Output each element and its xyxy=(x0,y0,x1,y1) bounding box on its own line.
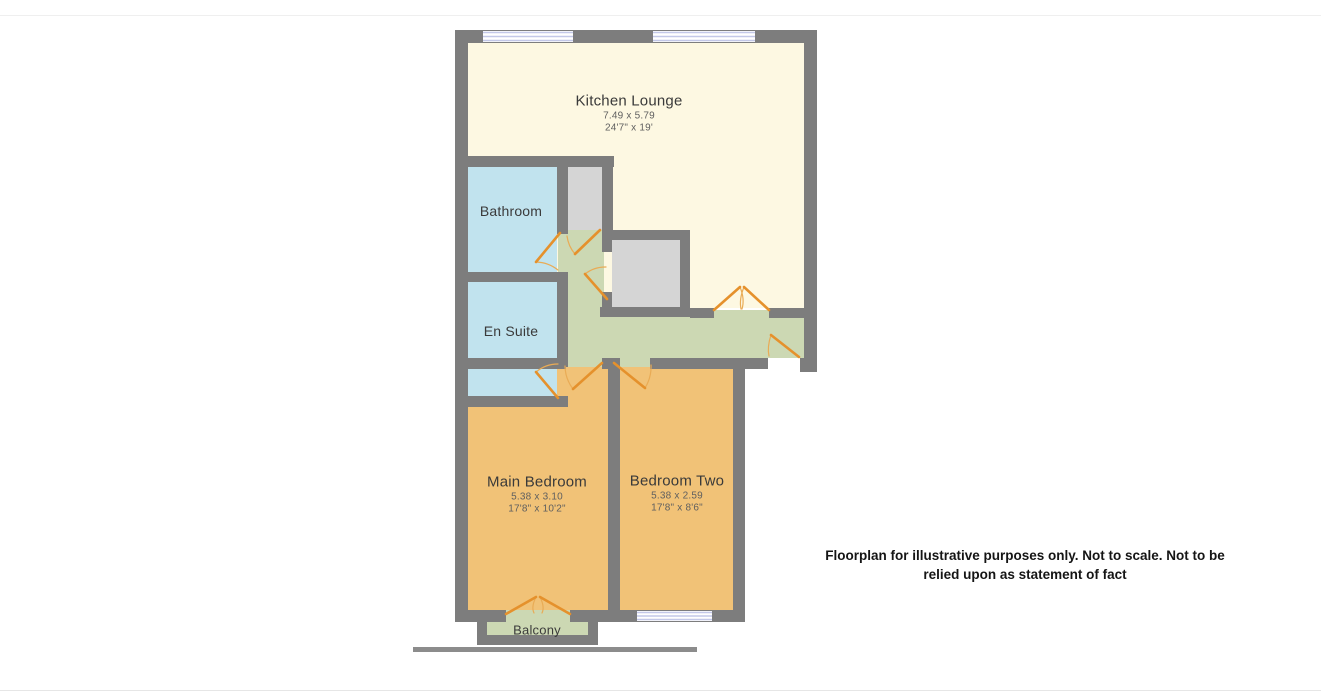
main-bedroom-dims-metric: 5.38 x 3.10 xyxy=(511,492,563,503)
en-suite-label: En Suite xyxy=(484,323,539,339)
wall-bedrooms-divider xyxy=(608,358,620,622)
wall-bathroom-top xyxy=(455,156,614,167)
kitchen-lounge-dims-metric: 7.49 x 5.79 xyxy=(603,111,655,122)
wall-ensuite-right xyxy=(557,282,568,367)
bedroom-two-dims-metric: 5.38 x 2.59 xyxy=(651,491,703,502)
kitchen-lounge-label: Kitchen Lounge xyxy=(575,93,682,110)
wall-right xyxy=(804,30,817,372)
bedroom-two-window xyxy=(637,611,712,621)
wall-bedrooms-top-3 xyxy=(650,358,745,369)
wall-storage-right xyxy=(680,230,690,317)
wall-closet-right xyxy=(602,156,613,240)
wall-bedroom-two-right xyxy=(733,358,745,622)
wall-left xyxy=(455,30,468,622)
wall-bathroom-ensuite-divider xyxy=(455,272,568,282)
bedroom-two-label: Bedroom Two xyxy=(630,473,724,490)
kitchen-lounge-dims-imperial: 24'7" x 19' xyxy=(605,123,653,134)
wall-bathroom-right xyxy=(557,156,568,234)
bathroom-room xyxy=(466,166,557,272)
wall-storage-top xyxy=(602,230,690,240)
wall-kitchen-bottom-right xyxy=(769,308,804,318)
wall-entrance-corner xyxy=(800,358,817,372)
main-bedroom-label: Main Bedroom xyxy=(487,474,587,491)
balcony-label: Balcony xyxy=(513,623,561,638)
disclaimer-text: Floorplan for illustrative purposes only… xyxy=(825,546,1225,584)
wall-storage-left-upper xyxy=(602,240,612,252)
kitchen-window-right xyxy=(653,31,755,42)
kitchen-window-left xyxy=(483,31,573,42)
ground-line xyxy=(413,647,697,652)
storage-room xyxy=(612,240,680,307)
closet-room xyxy=(568,166,602,230)
bedroom-two-dims-imperial: 17'8" x 8'6" xyxy=(651,503,703,514)
wall-storage-bottom xyxy=(600,307,690,317)
wall-hall-bottom-right xyxy=(745,358,768,369)
wall-bedrooms-top-1 xyxy=(455,358,566,369)
wall-kitchen-bottom-left xyxy=(690,308,714,318)
main-bedroom-dims-imperial: 17'8" x 10'2" xyxy=(508,504,565,515)
bathroom-label: Bathroom xyxy=(480,203,542,219)
wall-ensuite-bottom xyxy=(455,396,568,407)
